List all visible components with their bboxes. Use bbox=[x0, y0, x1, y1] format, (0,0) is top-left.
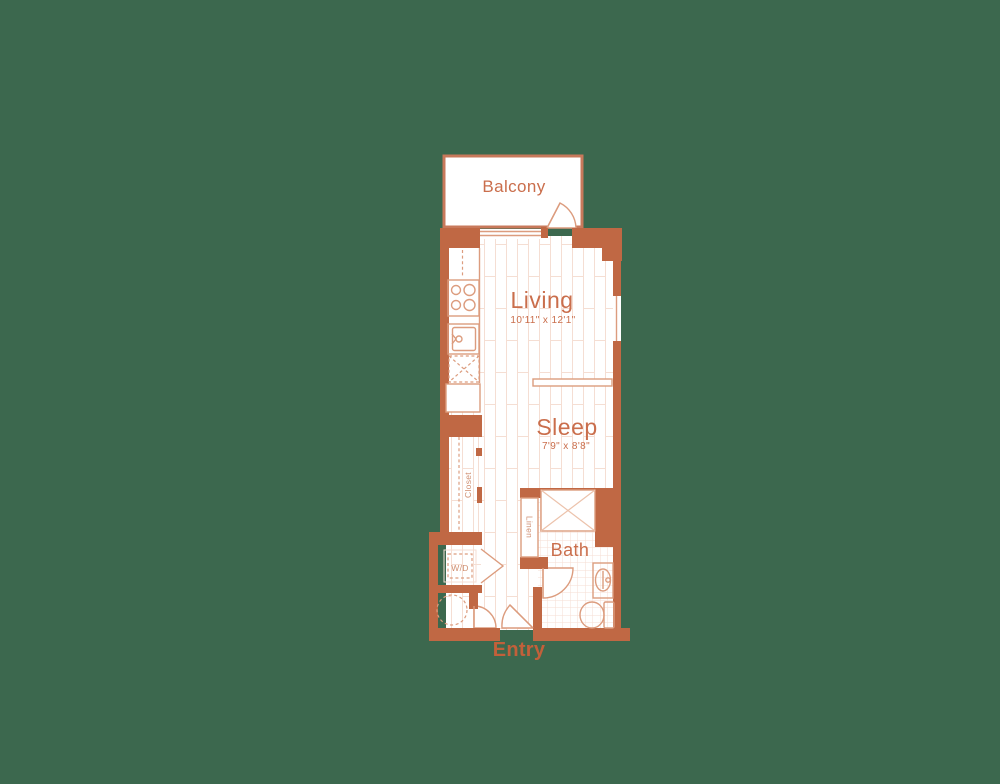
floor-plan-canvas: Balcony bbox=[0, 0, 1000, 784]
wall-bottom-left bbox=[429, 628, 500, 641]
linen-label: Linen bbox=[525, 516, 535, 538]
sleep-dimensions: 7'9" x 8'8" bbox=[542, 441, 590, 452]
living-dimensions: 10'11" x 12'1" bbox=[510, 315, 575, 326]
closet-jamb-mid bbox=[477, 487, 482, 503]
living-label: Living bbox=[510, 287, 573, 313]
wall-linen-bottom bbox=[520, 557, 548, 569]
sleep-label: Sleep bbox=[536, 414, 597, 440]
closet-label: Closet bbox=[463, 472, 473, 498]
linen-closet: Linen bbox=[521, 498, 538, 557]
sliding-door bbox=[480, 229, 541, 239]
wall-top-left bbox=[440, 228, 480, 248]
wall-left-lower bbox=[429, 537, 438, 632]
closet-jamb-top bbox=[476, 448, 482, 456]
wall-bottom-right bbox=[533, 628, 630, 641]
refrigerator-icon bbox=[446, 384, 480, 412]
balcony-label: Balcony bbox=[482, 177, 545, 196]
entry-label: Entry bbox=[493, 639, 546, 661]
kitchen-floor bbox=[446, 238, 480, 384]
wall-kitchen-closet bbox=[440, 415, 482, 437]
wall-wd-utility bbox=[429, 585, 482, 593]
bath-label: Bath bbox=[551, 540, 590, 560]
washer-dryer-label: W/D bbox=[451, 563, 468, 573]
shower-icon bbox=[541, 490, 595, 531]
window-icon bbox=[613, 296, 621, 341]
wall-bath-entry bbox=[533, 587, 542, 628]
wall-door-jamb bbox=[541, 227, 548, 238]
wall-top-right bbox=[572, 228, 622, 248]
living-sleep-divider bbox=[533, 379, 612, 386]
wall-shower-right bbox=[595, 490, 613, 547]
floor-plan: Balcony bbox=[0, 0, 1000, 784]
